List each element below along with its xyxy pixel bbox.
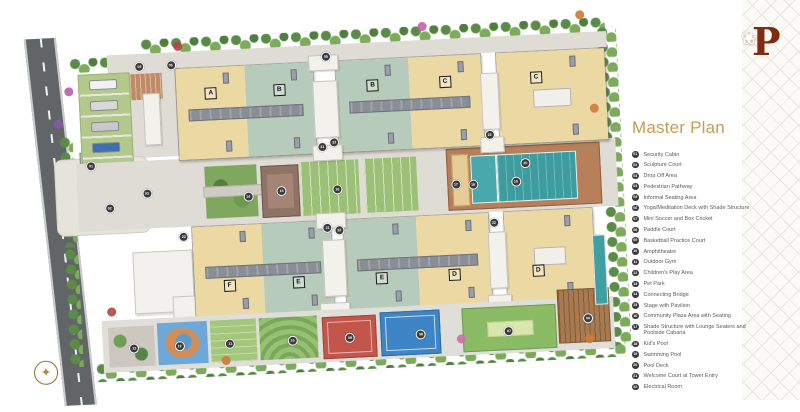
plan-marker-number: 15 — [280, 189, 284, 193]
legend-item-label: Connecting Bridge — [644, 291, 689, 298]
legend-item: 07 Mini Soccer and Box Cricket — [632, 216, 762, 223]
legend-item-label: Electrical Room — [644, 384, 683, 391]
legend-item-number: 22 — [632, 384, 639, 391]
plan-marker-number: 02 — [108, 206, 112, 210]
legend-item: 16 Community Plaza Area with Seating — [632, 313, 762, 320]
legend-item-number: 02 — [632, 162, 639, 169]
plan-marker-number: 10 — [291, 338, 295, 342]
legend-item: 19 Swimming Pool — [632, 351, 762, 358]
plan-marker-number: 11 — [228, 341, 232, 345]
legend-item-number: 10 — [632, 248, 639, 255]
legend-item-number: 12 — [632, 270, 639, 277]
plan-marker-number: 22 — [332, 140, 336, 144]
plan-marker-number: 14 — [246, 195, 250, 199]
plan-marker: 01 — [86, 161, 96, 171]
plan-marker-number: 17 — [454, 182, 458, 186]
legend-item-number: 14 — [632, 291, 639, 298]
legend-list: 01 Security Cabin 02 Sculpture Court 03 … — [632, 151, 762, 390]
legend-item-label: Pool Deck — [644, 362, 669, 369]
plan-marker-number: 07 — [507, 329, 511, 333]
legend-item-number: 21 — [632, 373, 639, 380]
legend-item: 15 Stage with Pavilion — [632, 302, 762, 309]
plan-marker: 02 — [104, 203, 114, 213]
plan-marker-number: 08 — [419, 332, 423, 336]
legend-item-label: Informal Seating Area — [644, 194, 697, 201]
legend-panel: Master Plan 01 Security Cabin 02 Sculptu… — [632, 118, 762, 395]
plan-marker: 22 — [484, 129, 494, 139]
plan-marker: 17 — [451, 179, 461, 189]
plan-marker: 22 — [179, 232, 189, 242]
plan-marker-number: 05 — [169, 63, 173, 67]
plan-marker: 15 — [276, 186, 286, 196]
plan-marker-number: 05 — [324, 55, 328, 59]
plan-marker-number: 21 — [325, 226, 329, 230]
legend-item-number: 15 — [632, 302, 639, 309]
brand-logo: P ❀ — [744, 18, 784, 70]
plan-marker-number: 12 — [177, 344, 181, 348]
legend-item-number: 08 — [632, 227, 639, 234]
plan-marker-number: 22 — [488, 133, 492, 137]
legend-item-number: 20 — [632, 362, 639, 369]
legend-item-number: 06 — [632, 205, 639, 212]
legend-item-number: 07 — [632, 216, 639, 223]
legend-item-label: Outdoor Gym — [644, 259, 677, 266]
legend-item-label: Pet Park — [644, 281, 665, 288]
plan-marker: 08 — [416, 329, 426, 339]
legend-item: 18 Kid's Pool — [632, 341, 762, 348]
plan-marker: 06 — [583, 313, 593, 323]
plan-marker: 14 — [243, 191, 253, 201]
legend-item-label: Paddle Court — [644, 227, 676, 234]
legend-item: 14 Connecting Bridge — [632, 291, 762, 298]
plan-marker-number: 03 — [145, 191, 149, 195]
plan-marker: 19 — [511, 176, 521, 186]
plan-markers-layer: 01 02 03 04 05 05 — [9, 0, 639, 412]
legend-item: 21 Welcome Court at Tower Entry — [632, 373, 762, 380]
legend-item: 11 Outdoor Gym — [632, 259, 762, 266]
plan-marker: 20 — [520, 158, 530, 168]
legend-item-label: Community Plaza Area with Seating — [644, 313, 731, 320]
legend-item-label: Mini Soccer and Box Cricket — [644, 216, 713, 223]
legend-item-label: Amphitheatre — [644, 248, 677, 255]
plan-marker-number: 22 — [492, 221, 496, 225]
plan-marker-number: 04 — [137, 65, 141, 69]
plan-marker: 18 — [468, 179, 478, 189]
legend-item-label: Drop Off Area — [644, 173, 678, 180]
plan-marker-number: 19 — [514, 180, 518, 184]
plan-marker-number: 20 — [523, 161, 527, 165]
legend-item: 13 Pet Park — [632, 281, 762, 288]
plan-marker: 11 — [225, 338, 235, 348]
plan-marker: 05 — [165, 60, 175, 70]
plan-marker-number: 16 — [335, 187, 339, 191]
legend-item-label: Kid's Pool — [644, 341, 668, 348]
legend-item: 04 Pedestrian Pathway — [632, 183, 762, 190]
legend-item: 05 Informal Seating Area — [632, 194, 762, 201]
legend-item: 12 Children's Play Area — [632, 270, 762, 277]
legend-item: 08 Paddle Court — [632, 227, 762, 234]
legend-item-number: 11 — [632, 259, 639, 266]
legend-item: 09 Basketball Practice Court — [632, 237, 762, 244]
plan-marker: 03 — [142, 188, 152, 198]
plan-marker: 21 — [317, 141, 327, 151]
legend-item-label: Pedestrian Pathway — [644, 183, 693, 190]
legend-item: 06 Yoga/Meditation Deck with Shade Struc… — [632, 205, 762, 212]
legend-item-number: 04 — [632, 183, 639, 190]
legend-title: Master Plan — [632, 118, 762, 138]
plan-marker: 22 — [329, 137, 339, 147]
legend-item: 01 Security Cabin — [632, 151, 762, 158]
legend-item: 02 Sculpture Court — [632, 162, 762, 169]
plan-marker: 22 — [334, 225, 344, 235]
legend-item-number: 05 — [632, 194, 639, 201]
legend-item-label: Stage with Pavilion — [644, 302, 690, 309]
legend-item: 22 Electrical Room — [632, 384, 762, 391]
master-plan-page: P ❀ ENTRY ▸ EXIT ◂ ✦ — [0, 0, 800, 400]
legend-item: 10 Amphitheatre — [632, 248, 762, 255]
legend-item-number: 13 — [632, 281, 639, 288]
legend-item-number: 09 — [632, 237, 639, 244]
plan-marker-number: 18 — [471, 182, 475, 186]
legend-item-label: Basketball Practice Court — [644, 237, 706, 244]
plan-marker: 05 — [321, 52, 331, 62]
legend-item-label: Swimming Pool — [644, 351, 682, 358]
plan-marker-number: 13 — [132, 346, 136, 350]
flower-icon: ❀ — [741, 27, 757, 50]
legend-item-label: Children's Play Area — [644, 270, 693, 277]
legend-item-label: Welcome Court at Tower Entry — [644, 373, 718, 380]
legend-item: 20 Pool Deck — [632, 362, 762, 369]
legend-item-label: Security Cabin — [644, 151, 680, 158]
plan-marker: 10 — [287, 335, 297, 345]
legend-item-number: 18 — [632, 341, 639, 348]
plan-marker-number: 21 — [320, 145, 324, 149]
legend-item-label: Shade Structure with Lounge Seaters and … — [644, 324, 763, 337]
site-plan: ENTRY ▸ EXIT ◂ ✦ — [9, 0, 639, 412]
plan-marker-number: 22 — [182, 235, 186, 239]
legend-item-number: 03 — [632, 173, 639, 180]
legend-item-number: 17 — [632, 324, 639, 331]
plan-marker-number: 09 — [348, 336, 352, 340]
legend-item-label: Yoga/Meditation Deck with Shade Structur… — [644, 205, 750, 212]
plan-marker: 04 — [134, 62, 144, 72]
legend-item-number: 19 — [632, 351, 639, 358]
plan-marker: 21 — [322, 223, 332, 233]
legend-item-number: 01 — [632, 151, 639, 158]
legend-item-number: 16 — [632, 313, 639, 320]
plan-marker-number: 06 — [586, 316, 590, 320]
plan-marker: 09 — [345, 332, 355, 342]
plan-marker: 22 — [489, 217, 499, 227]
legend-item: 17 Shade Structure with Lounge Seaters a… — [632, 324, 762, 337]
plan-marker: 12 — [174, 341, 184, 351]
plan-marker: 07 — [504, 325, 514, 335]
plan-marker-number: 22 — [337, 228, 341, 232]
legend-item-label: Sculpture Court — [644, 162, 682, 169]
plan-marker: 13 — [129, 343, 139, 353]
plan-marker: 16 — [332, 184, 342, 194]
legend-item: 03 Drop Off Area — [632, 173, 762, 180]
plan-marker-number: 01 — [89, 164, 93, 168]
